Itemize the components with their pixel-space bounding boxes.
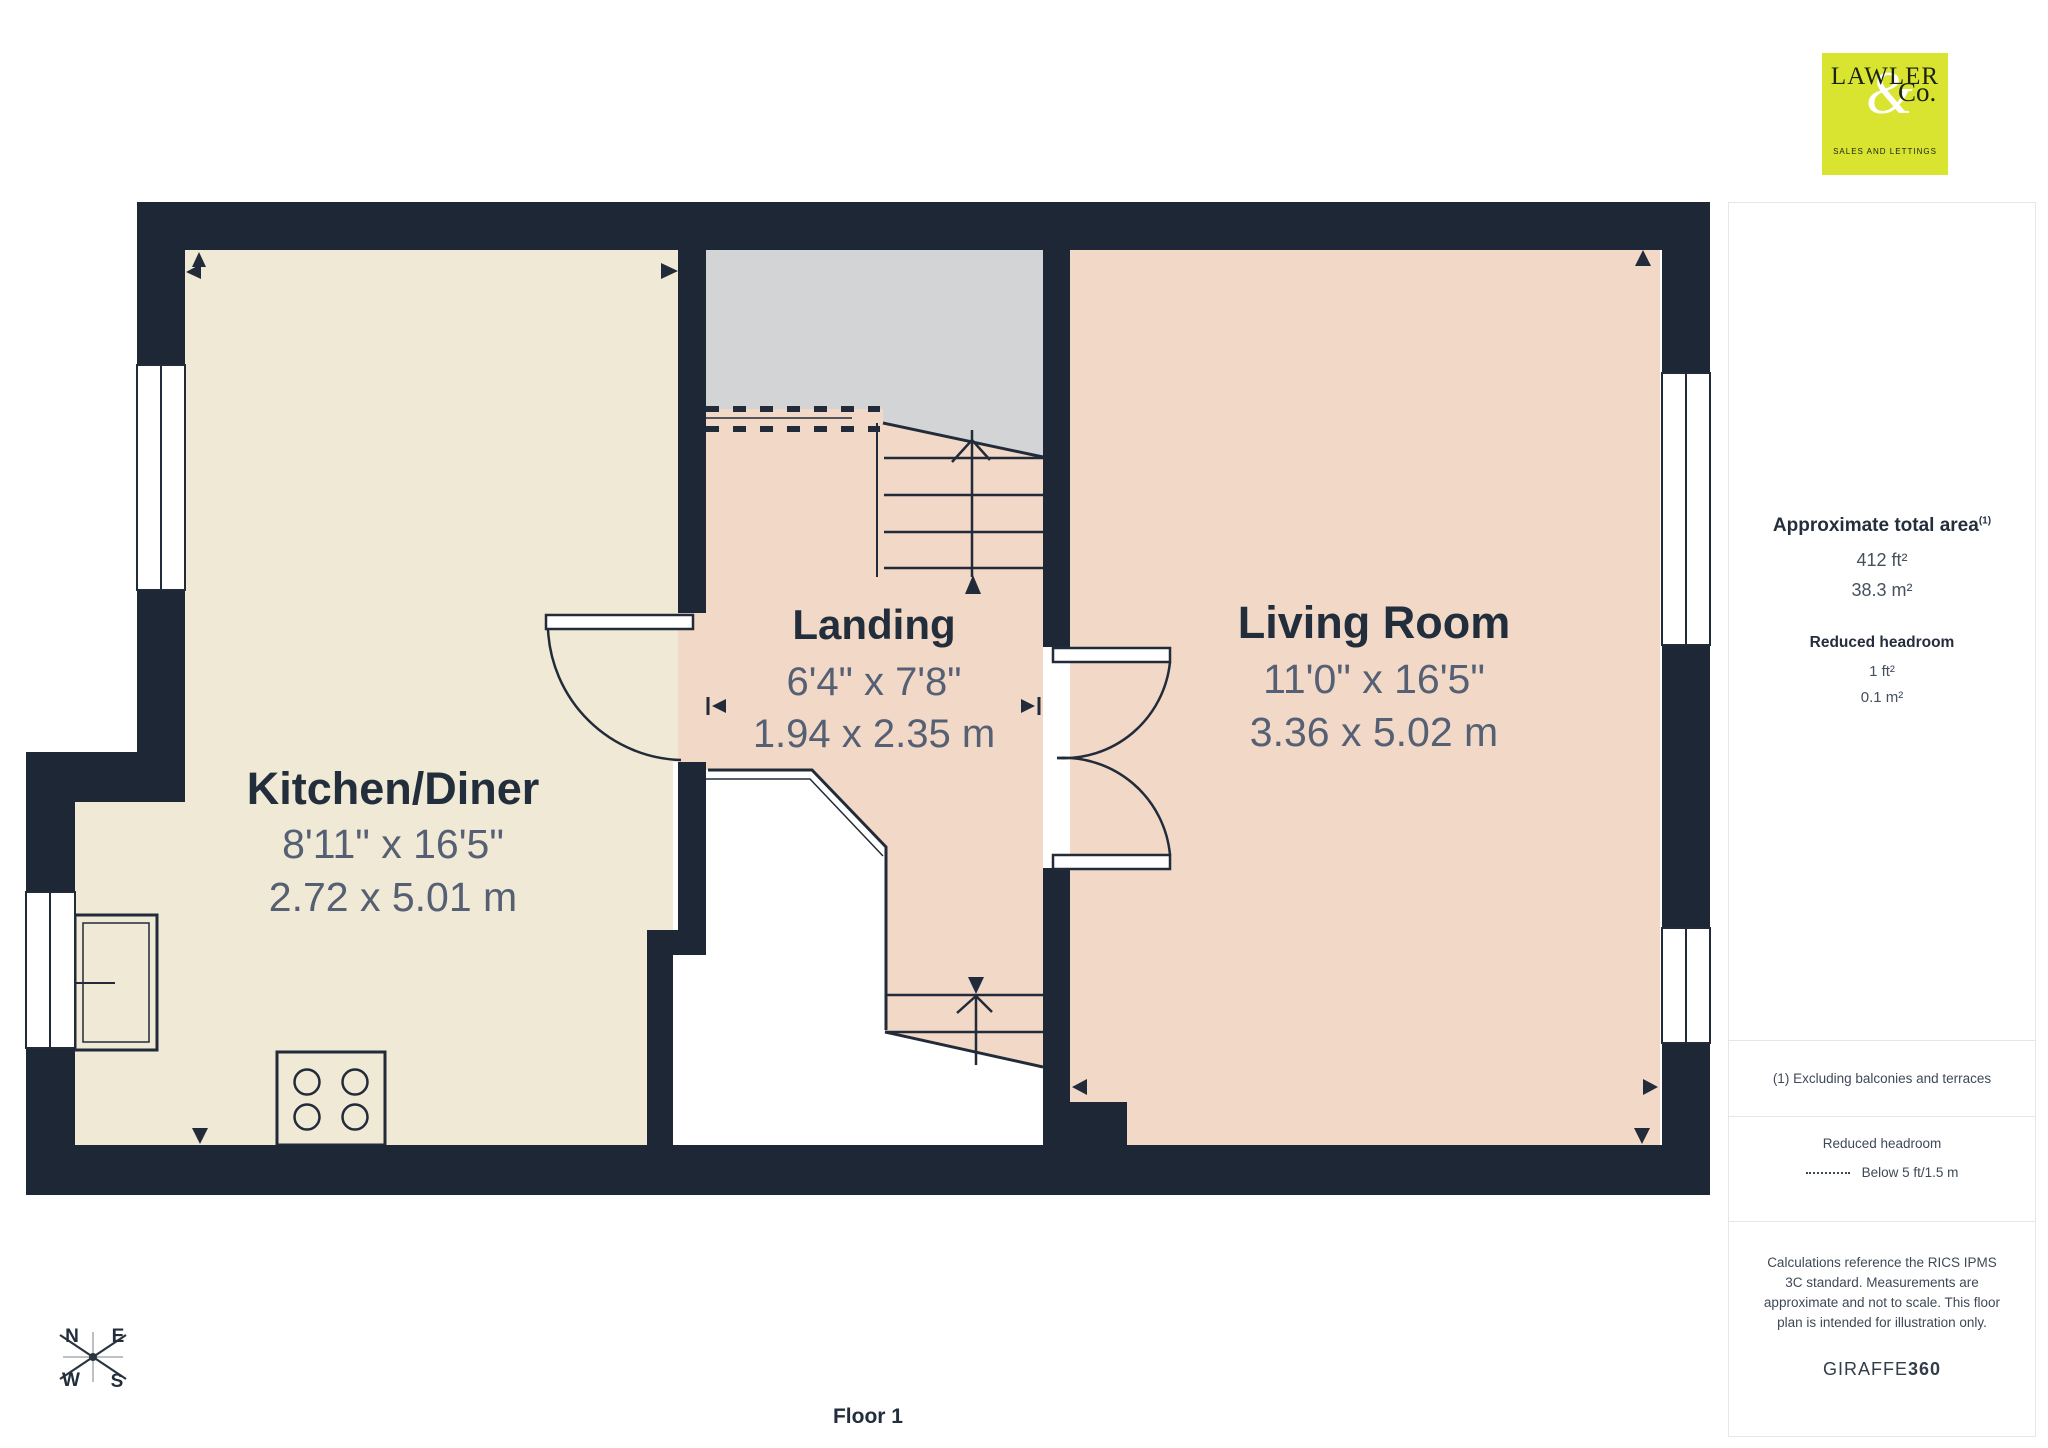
- wall-landing-living-upper: [1043, 250, 1070, 647]
- wall-left-upper: [137, 590, 185, 752]
- kitchen-door-leaf: [546, 615, 693, 629]
- room-dim-metric: 2.72 x 5.01 m: [269, 874, 517, 920]
- living-door-leaf-bottom: [1053, 855, 1170, 869]
- total-area-heading: Approximate total area(1): [1728, 515, 2036, 537]
- wall-kitchen-landing-upper: [678, 250, 706, 613]
- total-area-heading-text: Approximate total area: [1773, 515, 1979, 536]
- giraffe360-brand: GIRAFFE360: [1728, 1359, 2036, 1380]
- reduced-headroom-imperial: 1 ft²: [1728, 663, 2036, 680]
- room-dim-metric: 3.36 x 5.02 m: [1250, 709, 1498, 755]
- agency-logo: & LAWLER Co. SALES AND LETTINGS: [1822, 53, 1948, 175]
- floorplan-page: Kitchen/Diner 8'11" x 16'5" 2.72 x 5.01 …: [0, 0, 2048, 1448]
- compass-center-dot: [89, 1353, 97, 1361]
- room-dim-metric: 1.94 x 2.35 m: [753, 712, 995, 756]
- room-dim-imperial: 11'0" x 16'5": [1263, 656, 1485, 702]
- footnote-text: (1) Excluding balconies and terraces: [1773, 1071, 1991, 1086]
- room-name: Landing: [792, 601, 955, 648]
- reduced-headroom-heading: Reduced headroom: [1728, 634, 2036, 652]
- total-area-imperial: 412 ft²: [1728, 550, 2036, 571]
- room-name: Kitchen/Diner: [247, 763, 540, 814]
- wall-right-upper: [1662, 202, 1710, 373]
- reduced-headroom-metric: 0.1 m²: [1728, 689, 2036, 706]
- wall-left-upper: [137, 202, 185, 365]
- wall-left-lower: [26, 1048, 75, 1145]
- compass-n: N: [65, 1326, 79, 1347]
- compass-e: E: [112, 1326, 125, 1347]
- room-dim-imperial: 8'11" x 16'5": [282, 821, 504, 867]
- total-area-block: Approximate total area(1) 412 ft² 38.3 m…: [1728, 515, 2036, 706]
- stove-hob: [277, 1052, 385, 1145]
- total-area-metric: 38.3 m²: [1728, 580, 2036, 601]
- living-door-leaf-top: [1053, 648, 1170, 662]
- legend-item-text: Below 5 ft/1.5 m: [1862, 1165, 1959, 1180]
- floor-label: Floor 1: [833, 1405, 903, 1428]
- wall-landing-living-lower: [1043, 868, 1070, 1145]
- compass-w: W: [62, 1370, 80, 1391]
- legend-title: Reduced headroom: [1728, 1136, 2036, 1151]
- wall-right-lower: [1662, 1043, 1710, 1195]
- wall-left-step: [26, 752, 185, 802]
- brand-bold: 360: [1908, 1359, 1941, 1379]
- brand-normal: GIRAFFE: [1823, 1359, 1908, 1379]
- wall-bottom: [26, 1145, 1710, 1195]
- wall-left-lower: [26, 802, 75, 892]
- wall-living-base-block: [1070, 1102, 1127, 1145]
- room-dim-imperial: 6'4" x 7'8": [787, 660, 962, 704]
- dotted-line-swatch: [1806, 1172, 1850, 1174]
- logo-co: Co.: [1898, 79, 1936, 106]
- disclaimer-text: Calculations reference the RICS IPMS 3C …: [1761, 1253, 2003, 1333]
- legend-row: Below 5 ft/1.5 m: [1728, 1165, 2036, 1180]
- disclaimer-box: Calculations reference the RICS IPMS 3C …: [1728, 1221, 2036, 1437]
- compass-rose: N E W S: [60, 1326, 126, 1392]
- footnote-box: (1) Excluding balconies and terraces: [1728, 1040, 2036, 1116]
- landing-door-strip: [678, 613, 706, 762]
- logo-tagline: SALES AND LETTINGS: [1822, 147, 1948, 156]
- wall-top: [137, 202, 1710, 250]
- compass-s: S: [111, 1371, 124, 1392]
- footnote-marker: (1): [1979, 516, 1991, 527]
- wall-right-middle: [1662, 645, 1710, 928]
- legend-box: Reduced headroom Below 5 ft/1.5 m: [1728, 1116, 2036, 1221]
- room-name: Living Room: [1238, 597, 1510, 648]
